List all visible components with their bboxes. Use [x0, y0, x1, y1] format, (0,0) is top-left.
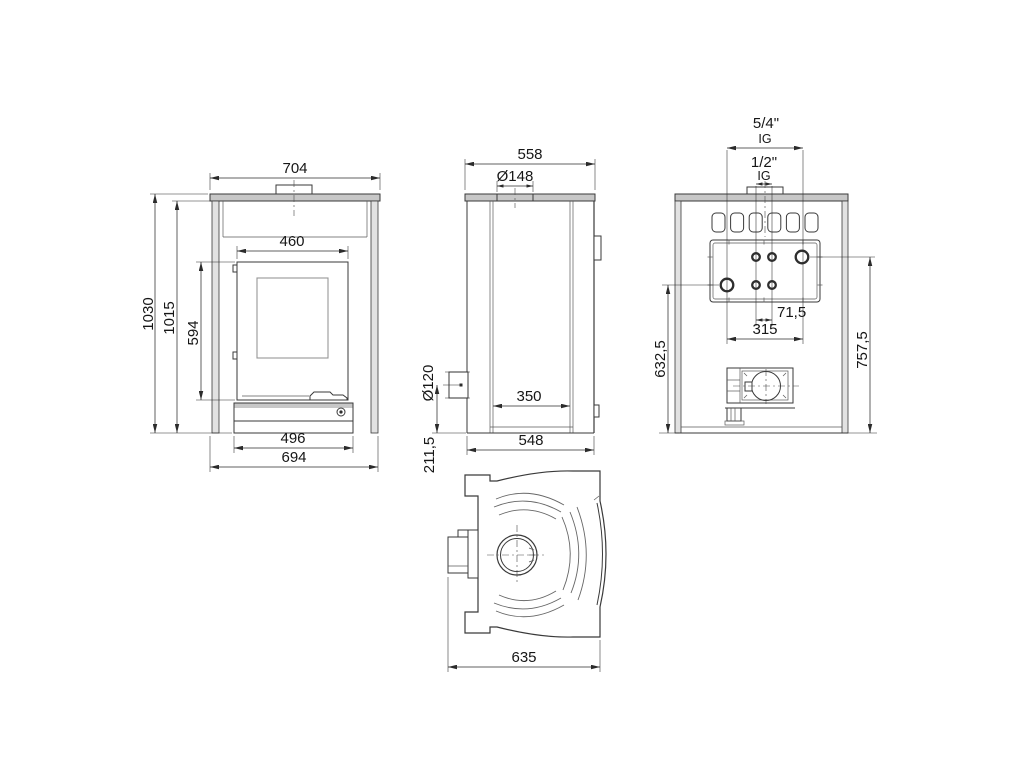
dim-label-ig-2: IG [757, 169, 770, 183]
rear-flue-flange [468, 530, 478, 578]
dim-label-211-5: 211,5 [421, 437, 438, 473]
dim-label-635: 635 [511, 649, 536, 666]
back-left-column [675, 201, 681, 433]
dim-label-757-5: 757,5 [854, 331, 871, 369]
dim-label-5-4in: 5/4" [753, 115, 779, 132]
dim-label-1030: 1030 [140, 297, 157, 330]
dim-label-350: 350 [516, 388, 541, 405]
dim-label-ig-1: IG [758, 132, 771, 146]
ash-lip-side [594, 405, 599, 417]
back-top-plate [675, 194, 848, 201]
stove-door [237, 262, 348, 400]
dim-label-496: 496 [280, 430, 305, 447]
dim-label-694: 694 [281, 449, 306, 466]
technical-drawing: 704 1030 1015 594 460 [0, 0, 1024, 768]
dim-label-558: 558 [517, 146, 542, 163]
dim-label-632-5: 632,5 [652, 340, 669, 378]
dim-label-71-5: 71,5 [777, 304, 806, 321]
flue-clamp [745, 382, 752, 391]
dim-label-460: 460 [279, 233, 304, 250]
front-right-column [371, 201, 378, 433]
side-top-plate [465, 194, 595, 201]
rear-flue-stub [448, 537, 468, 573]
dim-label-315: 315 [752, 321, 777, 338]
supply-connection-hole [796, 251, 809, 264]
front-top-plate [210, 194, 380, 201]
dim-label-1015: 1015 [161, 301, 178, 334]
door-hinge-top [233, 265, 237, 272]
back-right-column [842, 201, 848, 433]
door-handle [594, 236, 601, 260]
dim-label-d148: Ø148 [497, 168, 534, 185]
dim-label-548: 548 [518, 432, 543, 449]
dim-label-704: 704 [282, 160, 307, 177]
door-hinge-bottom [233, 352, 237, 359]
front-left-column [212, 201, 219, 433]
dim-label-d120: Ø120 [420, 365, 437, 402]
dim-label-594: 594 [185, 320, 202, 345]
